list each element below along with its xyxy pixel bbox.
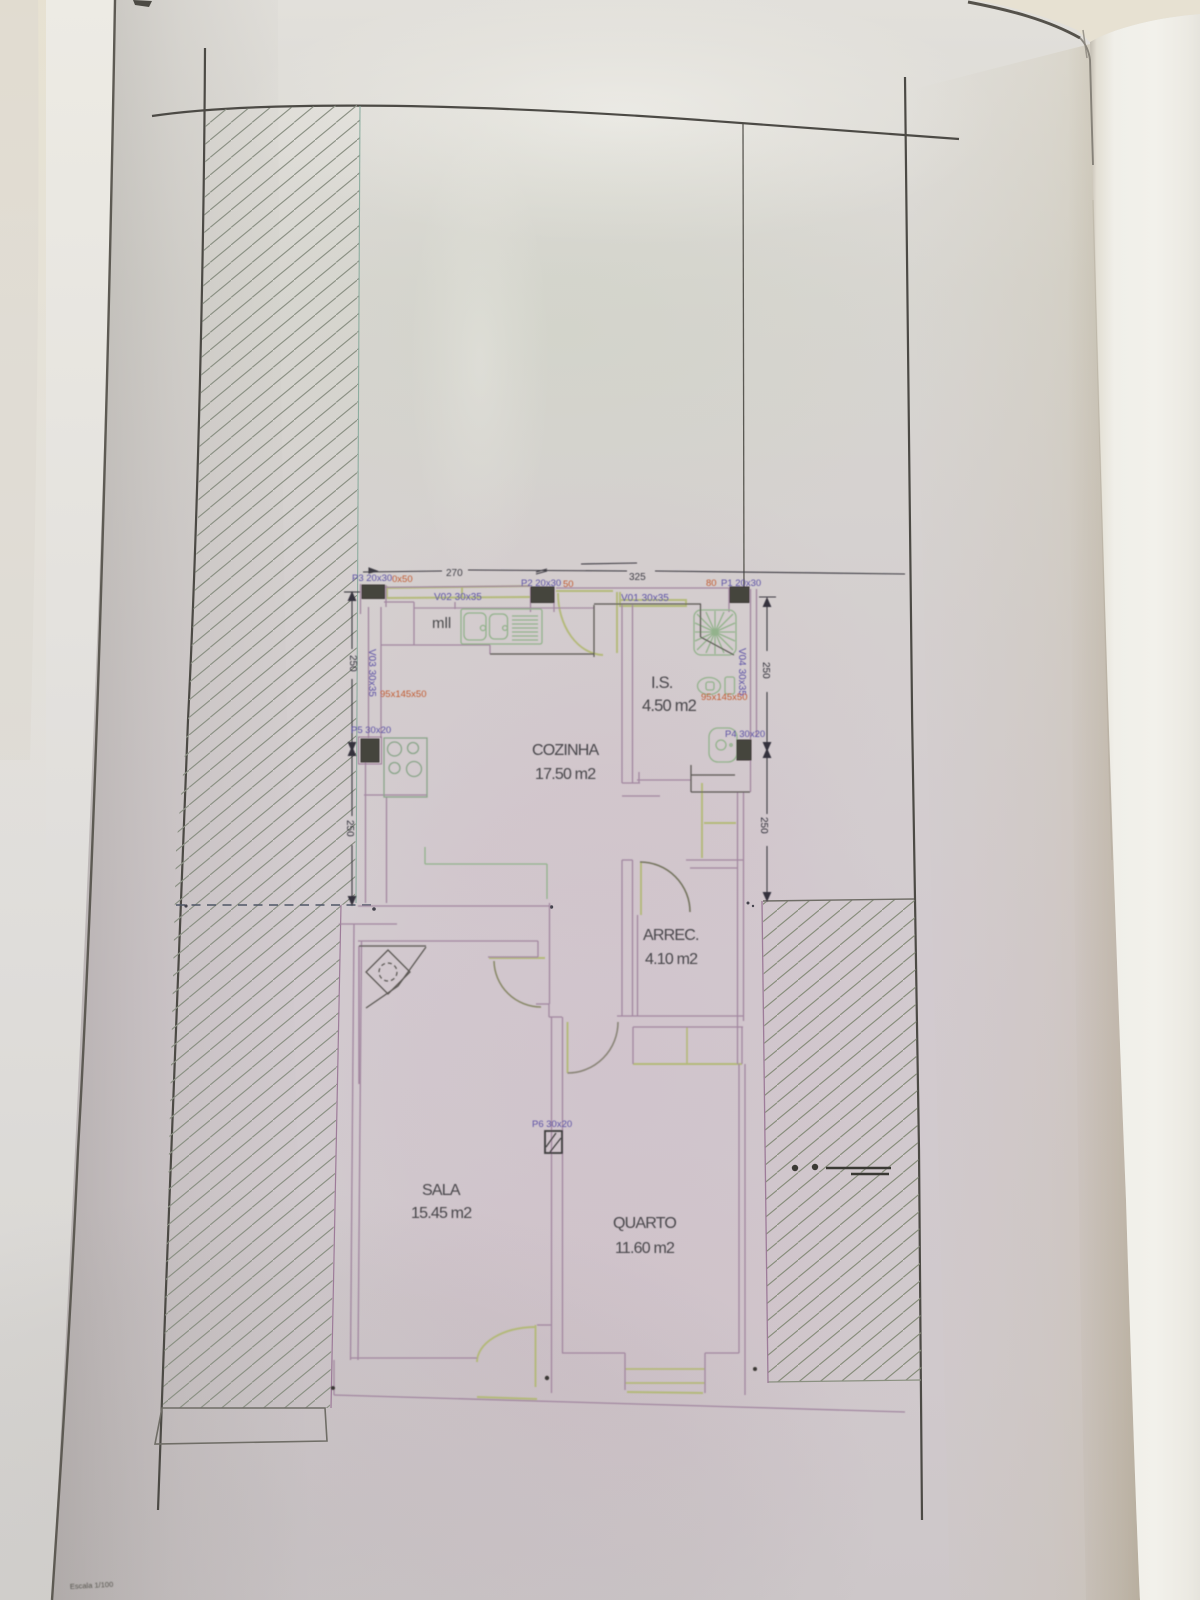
svg-text:V01 30x35: V01 30x35 bbox=[621, 593, 669, 604]
svg-text:SALA: SALA bbox=[422, 1182, 461, 1199]
svg-text:250: 250 bbox=[758, 817, 769, 834]
svg-text:4.10 m2: 4.10 m2 bbox=[645, 951, 698, 968]
svg-text:V03 30x35: V03 30x35 bbox=[366, 649, 377, 697]
svg-text:17.50 m2: 17.50 m2 bbox=[535, 766, 596, 783]
svg-text:15.45 m2: 15.45 m2 bbox=[411, 1205, 472, 1222]
svg-text:I.S.: I.S. bbox=[651, 674, 673, 692]
svg-text:11.60 m2: 11.60 m2 bbox=[615, 1240, 675, 1257]
svg-text:270: 270 bbox=[446, 568, 463, 579]
svg-text:P4 30x20: P4 30x20 bbox=[725, 729, 765, 740]
svg-text:V02 30x35: V02 30x35 bbox=[434, 592, 482, 603]
svg-text:250: 250 bbox=[347, 655, 358, 672]
svg-text:P1 20x30: P1 20x30 bbox=[721, 578, 761, 589]
svg-text:P6 30x20: P6 30x20 bbox=[532, 1119, 572, 1130]
svg-text:0x50: 0x50 bbox=[392, 574, 413, 585]
svg-text:mll: mll bbox=[432, 615, 451, 632]
svg-text:250: 250 bbox=[760, 662, 771, 679]
svg-text:325: 325 bbox=[629, 572, 646, 583]
svg-text:95x145x50: 95x145x50 bbox=[701, 692, 747, 703]
svg-text:ARREC.: ARREC. bbox=[643, 927, 699, 944]
svg-text:QUARTO: QUARTO bbox=[613, 1215, 676, 1232]
svg-text:P2 20x30: P2 20x30 bbox=[521, 578, 561, 589]
svg-text:80: 80 bbox=[706, 578, 717, 589]
svg-text:P5 30x20: P5 30x20 bbox=[351, 725, 391, 736]
svg-text:50: 50 bbox=[563, 579, 574, 590]
svg-text:4.50 m2: 4.50 m2 bbox=[642, 697, 697, 715]
svg-text:250: 250 bbox=[344, 820, 355, 837]
svg-text:COZINHA: COZINHA bbox=[532, 742, 600, 759]
svg-text:P3 20x30: P3 20x30 bbox=[352, 573, 392, 584]
svg-text:95x145x50: 95x145x50 bbox=[380, 689, 426, 700]
svg-text:V04 30x35: V04 30x35 bbox=[736, 648, 747, 696]
